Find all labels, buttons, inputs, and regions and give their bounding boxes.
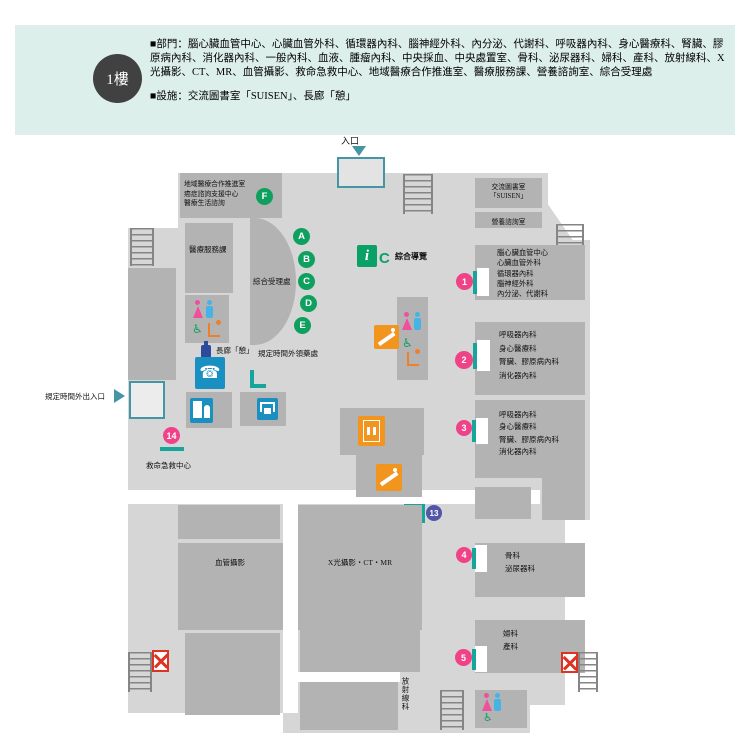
entry-bar: [473, 271, 477, 294]
marker-c-info: C: [379, 250, 390, 267]
floor-guide-page: 1樓 ■部門：腦心臟血管中心、心臟血管外科、循環器內科、腦神經外科、內分泌、代謝…: [0, 0, 744, 750]
header-banner: 1樓 ■部門：腦心臟血管中心、心臟血管外科、循環器內科、腦神經外科、內分泌、代謝…: [15, 25, 735, 135]
door-notch: [475, 545, 487, 572]
room-block: [128, 268, 176, 380]
header-text: ■部門：腦心臟血管中心、心臟血管外科、循環器內科、腦神經外科、內分泌、代謝科、呼…: [150, 38, 730, 115]
facilities-text: ■設施：交流圖書室「SUISEN」、長廊「憩」: [150, 90, 730, 104]
marker-f: F: [256, 188, 273, 205]
closed-elevator-icon: [152, 650, 169, 672]
woman-icon: [481, 693, 492, 711]
woman-icon: [401, 312, 412, 330]
man-icon: [412, 312, 423, 330]
floor-badge: 1樓: [93, 54, 142, 103]
dept-line: 腎臟、膠原病內科: [499, 434, 585, 446]
marker-1: 1: [456, 273, 473, 290]
corridor: [298, 672, 400, 682]
angiography-label: 血管攝影: [192, 558, 268, 568]
marker-3: 3: [456, 420, 472, 436]
elevator-icon: [358, 416, 385, 446]
entrance-arrow-icon: [352, 146, 366, 156]
marker-c: C: [298, 273, 315, 290]
door-notch: [477, 268, 489, 296]
marker-13: 13: [426, 505, 442, 521]
room-block: [300, 682, 398, 730]
radiology-label: 放射線科: [400, 677, 411, 711]
escalator-icon: [376, 464, 402, 491]
corridor: [283, 504, 298, 713]
room-block: [542, 478, 585, 520]
dept-line: 消化器內科: [499, 369, 585, 383]
emergency-entrance-bar: [160, 447, 184, 451]
stairs-icon: [128, 652, 152, 692]
door-notch: [477, 340, 490, 371]
atm-icon: [257, 398, 278, 420]
info-label: 綜合導覽: [395, 252, 427, 262]
after-hours-entrance-door: [129, 381, 165, 419]
dept-box-2: 呼吸器內科 身心醫療科 腎臟、膠原病內科 消化器內科: [475, 322, 585, 395]
entrance-door: [337, 157, 385, 188]
emergency-center-label: 救命急救中心: [146, 461, 191, 471]
medical-services-label: 醫療服務課: [189, 245, 227, 255]
dept-line: 身心醫療科: [499, 342, 585, 356]
information-icon: i: [357, 245, 377, 267]
door-notch: [475, 646, 487, 672]
closed-elevator-icon: [561, 652, 578, 673]
marker-5: 5: [455, 649, 472, 666]
phone-icon: ☎: [195, 357, 225, 389]
escalator-icon: [374, 325, 399, 349]
room-medical-services: [185, 223, 233, 293]
xray-label: X光攝影・CT・MR: [303, 558, 417, 568]
dept-line: 婦科: [503, 627, 585, 640]
room-block: [300, 620, 420, 672]
dept-line: 腦心臟血管中心: [497, 248, 585, 258]
priority-seat-icon: [407, 352, 419, 366]
door-notch: [476, 418, 488, 444]
room-nutrition: 營養諮詢室: [475, 212, 542, 228]
dept-box-3: 呼吸器內科 身心醫療科 腎臟、膠原病內科 消化器內科: [475, 400, 585, 478]
dept-line: 呼吸器內科: [499, 409, 585, 421]
dept-line: 腦神經外科: [497, 279, 585, 289]
entry-bar: [472, 548, 476, 569]
marker-14: 14: [163, 427, 180, 444]
reception-label: 綜合受理處: [253, 277, 291, 287]
dept-line: 心臟血管外科: [497, 258, 585, 268]
after-hours-entrance-arrow-icon: [114, 389, 125, 403]
after-hours-pharmacy-label: 規定時間外領藥處: [258, 349, 318, 359]
marker-b: B: [298, 251, 315, 268]
marker-d: D: [300, 295, 317, 312]
entry-bar: [473, 343, 477, 369]
marker-e: E: [294, 317, 311, 334]
wheelchair-icon: ♿: [192, 323, 203, 335]
library-label: 交流圖書室: [475, 183, 542, 192]
dept-line: 消化器內科: [499, 446, 585, 458]
dept-line: 骨科: [505, 549, 585, 562]
stairs-icon: [578, 652, 598, 692]
dept-box-1: 腦心臟血管中心 心臟血管外科 循環器內科 腦神經外科 內分泌、代謝科: [475, 245, 585, 300]
marker-2: 2: [455, 351, 473, 369]
stairs-icon: [403, 174, 433, 214]
dept-line: 泌尿器科: [505, 562, 585, 575]
nutrition-label: 營養諮詢室: [475, 212, 542, 226]
entry-bar: [472, 420, 476, 442]
library-label: 「SUISEN」: [475, 192, 542, 201]
vending-machine-icon: [190, 398, 213, 423]
after-hours-entrance-label: 規定時間外出入口: [45, 392, 105, 402]
departments-text: ■部門：腦心臟血管中心、心臟血管外科、循環器內科、腦神經外科、內分泌、代謝科、呼…: [150, 38, 730, 79]
woman-icon: [192, 300, 203, 318]
room-block: [185, 633, 280, 715]
dept-box-4: 骨科 泌尿器科: [475, 543, 585, 597]
man-icon: [492, 693, 503, 711]
room-block: [178, 505, 280, 539]
entry-bar: [472, 649, 476, 670]
dept-line: 身心醫療科: [499, 421, 585, 433]
wheelchair-icon: ♿: [402, 337, 413, 349]
corridor-rest-label: 長廊「憩」: [216, 346, 254, 356]
marker-a: A: [293, 228, 310, 245]
priority-seat-icon: [208, 323, 220, 337]
room-library-suisen: 交流圖書室 「SUISEN」: [475, 178, 542, 208]
dept-line: 腎臟、膠原病內科: [499, 355, 585, 369]
stairs-icon: [130, 228, 154, 266]
dept-line: 內分泌、代謝科: [497, 289, 585, 299]
wheelchair-icon: ♿: [483, 712, 493, 723]
room-angiography: [178, 543, 283, 630]
man-icon: [204, 300, 215, 318]
pharmacy-corner-mark: [250, 370, 266, 388]
room-block: [475, 487, 531, 519]
dept-line: 呼吸器內科: [499, 328, 585, 342]
dept-line: 循環器內科: [497, 269, 585, 279]
marker-4: 4: [456, 547, 472, 563]
stairs-icon: [440, 690, 464, 730]
